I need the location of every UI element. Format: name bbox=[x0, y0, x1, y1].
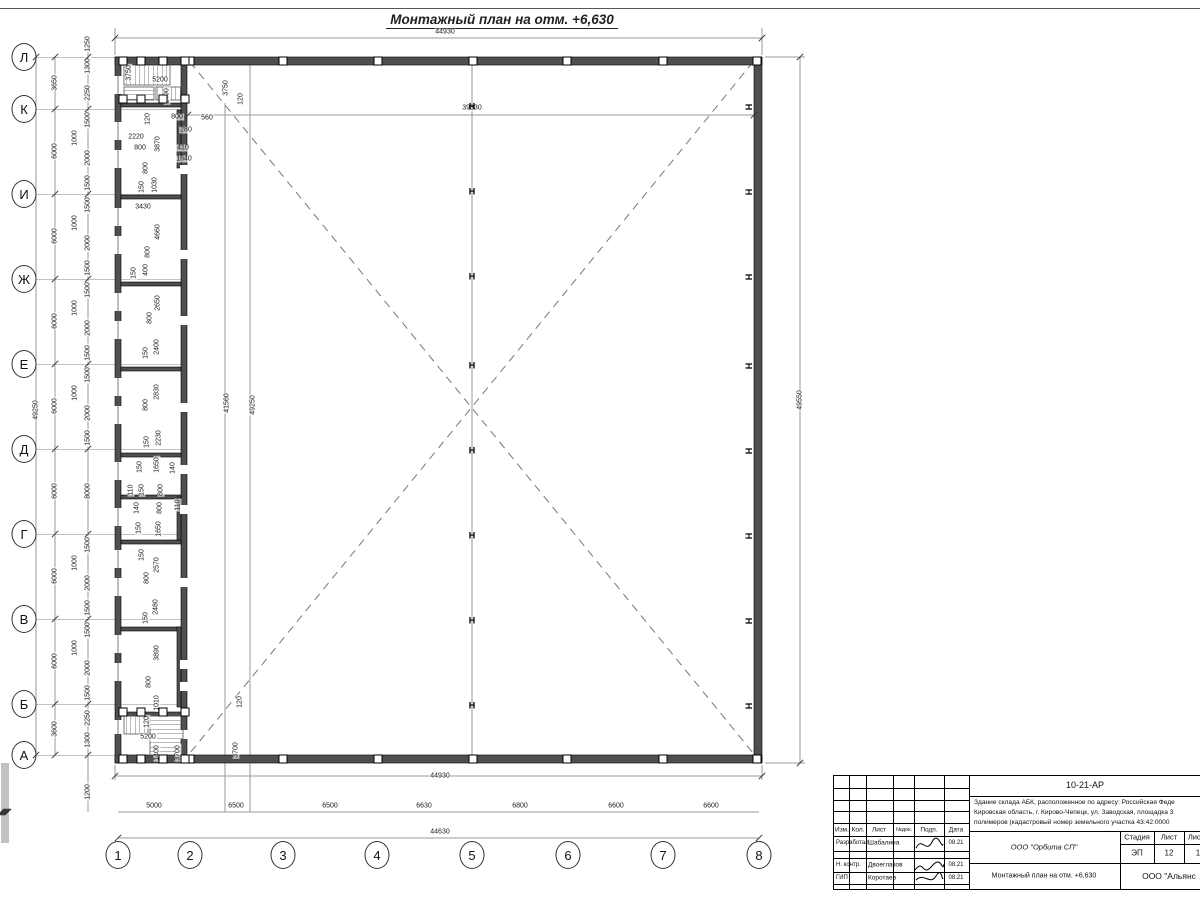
dim-label: 800 bbox=[157, 501, 164, 515]
column-h-marker: Н bbox=[469, 617, 476, 626]
dim-label: 2570 bbox=[154, 556, 161, 574]
dim-label: 1650 bbox=[156, 520, 163, 538]
dim-label: 1640 bbox=[175, 156, 193, 163]
column-square bbox=[753, 755, 762, 764]
axis-row-bubble: А bbox=[12, 741, 37, 769]
dim-label: 1000 bbox=[72, 384, 79, 402]
dim-label: 110 bbox=[128, 483, 135, 496]
dim-label: 2000 bbox=[85, 234, 92, 252]
dim-label: 6500 bbox=[321, 803, 339, 810]
signature bbox=[912, 834, 946, 886]
column-square bbox=[374, 755, 383, 764]
dim-label: 41560 bbox=[224, 392, 231, 413]
dim-label: 150 bbox=[139, 483, 146, 497]
dim-tick bbox=[796, 759, 803, 766]
dim-label: 800 bbox=[144, 571, 151, 585]
dim-label: 1200 bbox=[85, 783, 92, 801]
column-h-marker-wall: Н bbox=[744, 618, 753, 625]
dim-tick bbox=[758, 34, 765, 41]
column-square bbox=[563, 57, 572, 66]
tb-date-1: 08.21 bbox=[948, 840, 963, 846]
column-square bbox=[119, 95, 128, 104]
column-square bbox=[137, 708, 146, 717]
tb-date-3: 08.21 bbox=[948, 875, 963, 881]
column-h-marker-wall: Н bbox=[744, 189, 753, 196]
column-h-marker-wall: Н bbox=[744, 533, 753, 540]
dim-label: 1500 bbox=[85, 366, 92, 384]
axis-row-bubble: Д bbox=[12, 435, 37, 463]
dim-label: 120 bbox=[238, 92, 245, 106]
dim-label: 6600 bbox=[702, 803, 720, 810]
column-h-marker: Н bbox=[469, 362, 476, 371]
dim-tick bbox=[51, 190, 58, 197]
dim-label: 2220 bbox=[127, 134, 145, 141]
dim-label: 1500 bbox=[85, 536, 92, 554]
dim-label: 3600 bbox=[52, 720, 59, 738]
dim-label: 800 bbox=[145, 245, 152, 259]
tb-desc-line3: полимеров (кадастровый номер земельного … bbox=[974, 818, 1200, 828]
tb-date-2: 08.21 bbox=[948, 862, 963, 868]
tb-sheets-label: Листов bbox=[1188, 833, 1200, 842]
tb-header-kol: Кол. bbox=[852, 827, 865, 834]
dim-label: 1500 bbox=[85, 281, 92, 299]
dim-label: 3750 bbox=[126, 64, 133, 82]
tb-name-3: Коротаев bbox=[868, 875, 896, 882]
tb-organization: ООО "Орбита СП" bbox=[1011, 843, 1078, 852]
dim-label: 280 bbox=[179, 127, 193, 134]
column-square bbox=[119, 755, 128, 764]
column-h-marker-wall: Н bbox=[744, 363, 753, 370]
dim-tick bbox=[51, 275, 58, 282]
dim-label: 6630 bbox=[415, 803, 433, 810]
dim-label: 560 bbox=[200, 115, 214, 122]
tb-description: Здание склада АБК, расположенное по адре… bbox=[974, 798, 1200, 828]
axis-col-bubble: 7 bbox=[651, 841, 676, 869]
dim-label: 2830 bbox=[154, 383, 161, 401]
dim-label: 3890 bbox=[154, 644, 161, 662]
dim-label: 2480 bbox=[153, 598, 160, 616]
dim-tick bbox=[51, 53, 58, 60]
dim-label: 150 bbox=[143, 346, 150, 360]
tb-header-data: Дата bbox=[949, 827, 963, 834]
column-square bbox=[159, 57, 168, 66]
dim-label: 4660 bbox=[155, 223, 162, 241]
dim-label: 800 bbox=[158, 483, 165, 497]
dim-tick bbox=[51, 700, 58, 707]
axis-col-bubble: 5 bbox=[460, 841, 485, 869]
axis-row-bubble: В bbox=[12, 605, 37, 633]
axis-col-bubble: 1 bbox=[106, 841, 131, 869]
dim-label: 6000 bbox=[52, 567, 59, 585]
axis-col-bubble: 3 bbox=[271, 841, 296, 869]
dim-tick bbox=[51, 751, 58, 758]
dim-label: 800 bbox=[147, 311, 154, 325]
column-square bbox=[659, 755, 668, 764]
dim-label: 110 bbox=[175, 498, 182, 511]
column-square bbox=[279, 57, 288, 66]
tb-header-podp: Подп. bbox=[920, 827, 937, 834]
dim-label: 1300 bbox=[85, 731, 92, 749]
tb-company: ООО "Альянс bbox=[1142, 871, 1196, 881]
column-square bbox=[181, 755, 190, 764]
dim-label: 800 bbox=[170, 114, 184, 121]
dim-label: 800 bbox=[146, 675, 153, 689]
dim-label: 5200 bbox=[151, 77, 169, 84]
dim-label: 6600 bbox=[607, 803, 625, 810]
dim-label: 140 bbox=[170, 461, 177, 475]
dim-label: 2000 bbox=[85, 574, 92, 592]
dim-label: 2250 bbox=[85, 709, 92, 727]
column-square bbox=[159, 755, 168, 764]
dim-label: 150 bbox=[139, 180, 146, 194]
dim-label: 1000 bbox=[72, 639, 79, 657]
tb-desc-line2: Кировская область, г. Кирово-Чепецк, ул.… bbox=[974, 808, 1200, 818]
dim-label: 6000 bbox=[52, 312, 59, 330]
column-square bbox=[469, 755, 478, 764]
dim-label: 49550 bbox=[797, 389, 804, 410]
dim-tick bbox=[111, 34, 118, 41]
axis-col-bubble: 4 bbox=[365, 841, 390, 869]
column-h-marker: Н bbox=[469, 188, 476, 197]
column-square bbox=[181, 95, 190, 104]
column-square bbox=[159, 708, 168, 717]
dim-label: 6800 bbox=[511, 803, 529, 810]
tb-role-2: Н. контр. bbox=[836, 862, 861, 868]
dim-label: 150 bbox=[139, 548, 146, 562]
dim-label: 2400 bbox=[154, 338, 161, 356]
dim-tick bbox=[51, 530, 58, 537]
dim-tick bbox=[750, 111, 757, 118]
column-square bbox=[659, 57, 668, 66]
axis-row-bubble: Г bbox=[12, 520, 37, 548]
tb-document-code: 10-21-АР bbox=[1066, 780, 1104, 790]
dim-label: 3870 bbox=[155, 135, 162, 153]
column-h-marker: Н bbox=[469, 532, 476, 541]
dim-label: 49250 bbox=[250, 394, 257, 415]
dim-label: 410 bbox=[176, 145, 190, 152]
axis-row-bubble: Б bbox=[12, 690, 37, 718]
dim-label: 2000 bbox=[85, 319, 92, 337]
dim-tick bbox=[111, 772, 118, 779]
dim-label: 2000 bbox=[85, 149, 92, 167]
tb-stage-label: Стадия bbox=[1124, 833, 1150, 842]
dim-label: 1250 bbox=[85, 35, 92, 53]
column-h-marker: Н bbox=[469, 702, 476, 711]
dim-label: 44930 bbox=[434, 29, 455, 36]
dim-label: 44630 bbox=[429, 829, 450, 836]
tb-drawing-name: Монтажный план на отм. +6,630 bbox=[992, 873, 1097, 880]
column-h-marker: Н bbox=[469, 447, 476, 456]
axis-row-bubble: К bbox=[12, 95, 37, 123]
axis-row-bubble: И bbox=[12, 180, 37, 208]
dim-tick bbox=[184, 111, 191, 118]
dim-label: 2650 bbox=[155, 294, 162, 312]
dim-tick bbox=[51, 615, 58, 622]
column-square bbox=[181, 708, 190, 717]
axis-row-bubble: Ж bbox=[12, 265, 37, 293]
column-h-marker: Н bbox=[469, 103, 476, 112]
column-h-marker-wall: Н bbox=[744, 703, 753, 710]
tb-header-izm: Изм. bbox=[835, 827, 849, 834]
column-square bbox=[469, 57, 478, 66]
dim-label: 6000 bbox=[52, 482, 59, 500]
tb-desc-line1: Здание склада АБК, расположенное по адре… bbox=[974, 798, 1200, 808]
dim-label: 150 bbox=[131, 266, 138, 280]
dim-label: 1500 bbox=[85, 111, 92, 129]
dim-tick bbox=[51, 105, 58, 112]
column-square bbox=[119, 57, 128, 66]
dim-label: 120 bbox=[144, 715, 151, 729]
axis-row-bubble: Е bbox=[12, 350, 37, 378]
dim-tick bbox=[796, 53, 803, 60]
dim-label: 3700 bbox=[233, 741, 240, 759]
column-square bbox=[119, 708, 128, 717]
column-square bbox=[181, 57, 190, 66]
dim-label: 6500 bbox=[227, 803, 245, 810]
dim-label: 120 bbox=[237, 695, 244, 709]
tb-role-3: ГИП bbox=[836, 875, 848, 881]
column-square bbox=[753, 57, 762, 66]
dim-label: 1000 bbox=[72, 129, 79, 147]
tb-sheet-label: Лист bbox=[1161, 833, 1177, 842]
dim-label: 1000 bbox=[72, 299, 79, 317]
column-h-marker-wall: Н bbox=[744, 274, 753, 281]
dim-label: 800 bbox=[143, 161, 150, 175]
dim-label: 1500 bbox=[85, 621, 92, 639]
tb-name-1: Шабалина bbox=[868, 840, 899, 847]
column-square bbox=[137, 95, 146, 104]
dim-tick bbox=[51, 360, 58, 367]
dim-label: 3650 bbox=[52, 74, 59, 92]
dim-label: 6000 bbox=[52, 397, 59, 415]
dim-label: 49250 bbox=[33, 399, 40, 420]
dim-label: 3430 bbox=[134, 204, 152, 211]
dim-label: 2230 bbox=[156, 429, 163, 447]
dim-label: 800 bbox=[133, 145, 147, 152]
dim-label: 150 bbox=[144, 435, 151, 449]
dim-label: 5200 bbox=[139, 734, 157, 741]
dim-label: 1000 bbox=[72, 214, 79, 232]
tb-sheets-value: 1 bbox=[1196, 849, 1200, 858]
dim-label: 1500 bbox=[85, 196, 92, 214]
tb-name-2: Двоеглазов bbox=[868, 862, 903, 869]
dim-label: 800 bbox=[143, 398, 150, 412]
drawing-sheet: { "title": "Монтажный план на отм. +6,63… bbox=[0, 0, 1200, 900]
dim-label: 1650 bbox=[154, 456, 161, 474]
column-square bbox=[159, 95, 168, 104]
dim-label: 6000 bbox=[52, 142, 59, 160]
column-square bbox=[137, 755, 146, 764]
dim-label: 1030 bbox=[152, 176, 159, 194]
dim-label: 120 bbox=[145, 112, 152, 126]
axis-col-bubble: 2 bbox=[178, 841, 203, 869]
tb-header-ndok: №док. bbox=[896, 827, 912, 833]
dim-label: 8000 bbox=[85, 482, 92, 500]
dim-label: 400 bbox=[143, 263, 150, 277]
dim-label: 1000 bbox=[72, 554, 79, 572]
dimension-labels-layer: ЛКИЖЕДГВБА123456783650600060006000600060… bbox=[0, 0, 1200, 900]
column-square bbox=[279, 755, 288, 764]
column-h-marker: Н bbox=[469, 273, 476, 282]
dim-label: 150 bbox=[143, 611, 150, 625]
tb-sheet-value: 12 bbox=[1165, 849, 1174, 858]
dim-label: 150 bbox=[137, 460, 144, 474]
axis-row-bubble: Л bbox=[12, 43, 37, 71]
column-square bbox=[374, 57, 383, 66]
dim-label: 3750 bbox=[223, 79, 230, 97]
dim-label: 140 bbox=[134, 501, 141, 515]
dim-label: 44930 bbox=[429, 773, 450, 780]
tb-stage-value: ЭП bbox=[1131, 849, 1143, 858]
column-h-marker-wall: Н bbox=[744, 448, 753, 455]
dim-label: 6000 bbox=[52, 227, 59, 245]
dim-label: 2250 bbox=[85, 84, 92, 102]
column-h-marker-wall: Н bbox=[744, 104, 753, 111]
dim-label: 150 bbox=[136, 521, 143, 535]
dim-label: 6000 bbox=[52, 652, 59, 670]
title-block: Изм. Кол. Лист №док. Подп. Дата Разработ… bbox=[833, 775, 1200, 890]
tb-role-1: Разработал bbox=[836, 840, 869, 846]
dim-label: 2000 bbox=[85, 404, 92, 422]
dim-tick bbox=[51, 445, 58, 452]
dim-label: 2000 bbox=[85, 659, 92, 677]
tb-header-list: Лист bbox=[872, 827, 886, 834]
dim-tick bbox=[84, 751, 91, 758]
axis-col-bubble: 8 bbox=[747, 841, 772, 869]
dim-label: 5000 bbox=[145, 803, 163, 810]
column-square bbox=[137, 57, 146, 66]
axis-col-bubble: 6 bbox=[556, 841, 581, 869]
dim-tick bbox=[758, 772, 765, 779]
column-square bbox=[563, 755, 572, 764]
